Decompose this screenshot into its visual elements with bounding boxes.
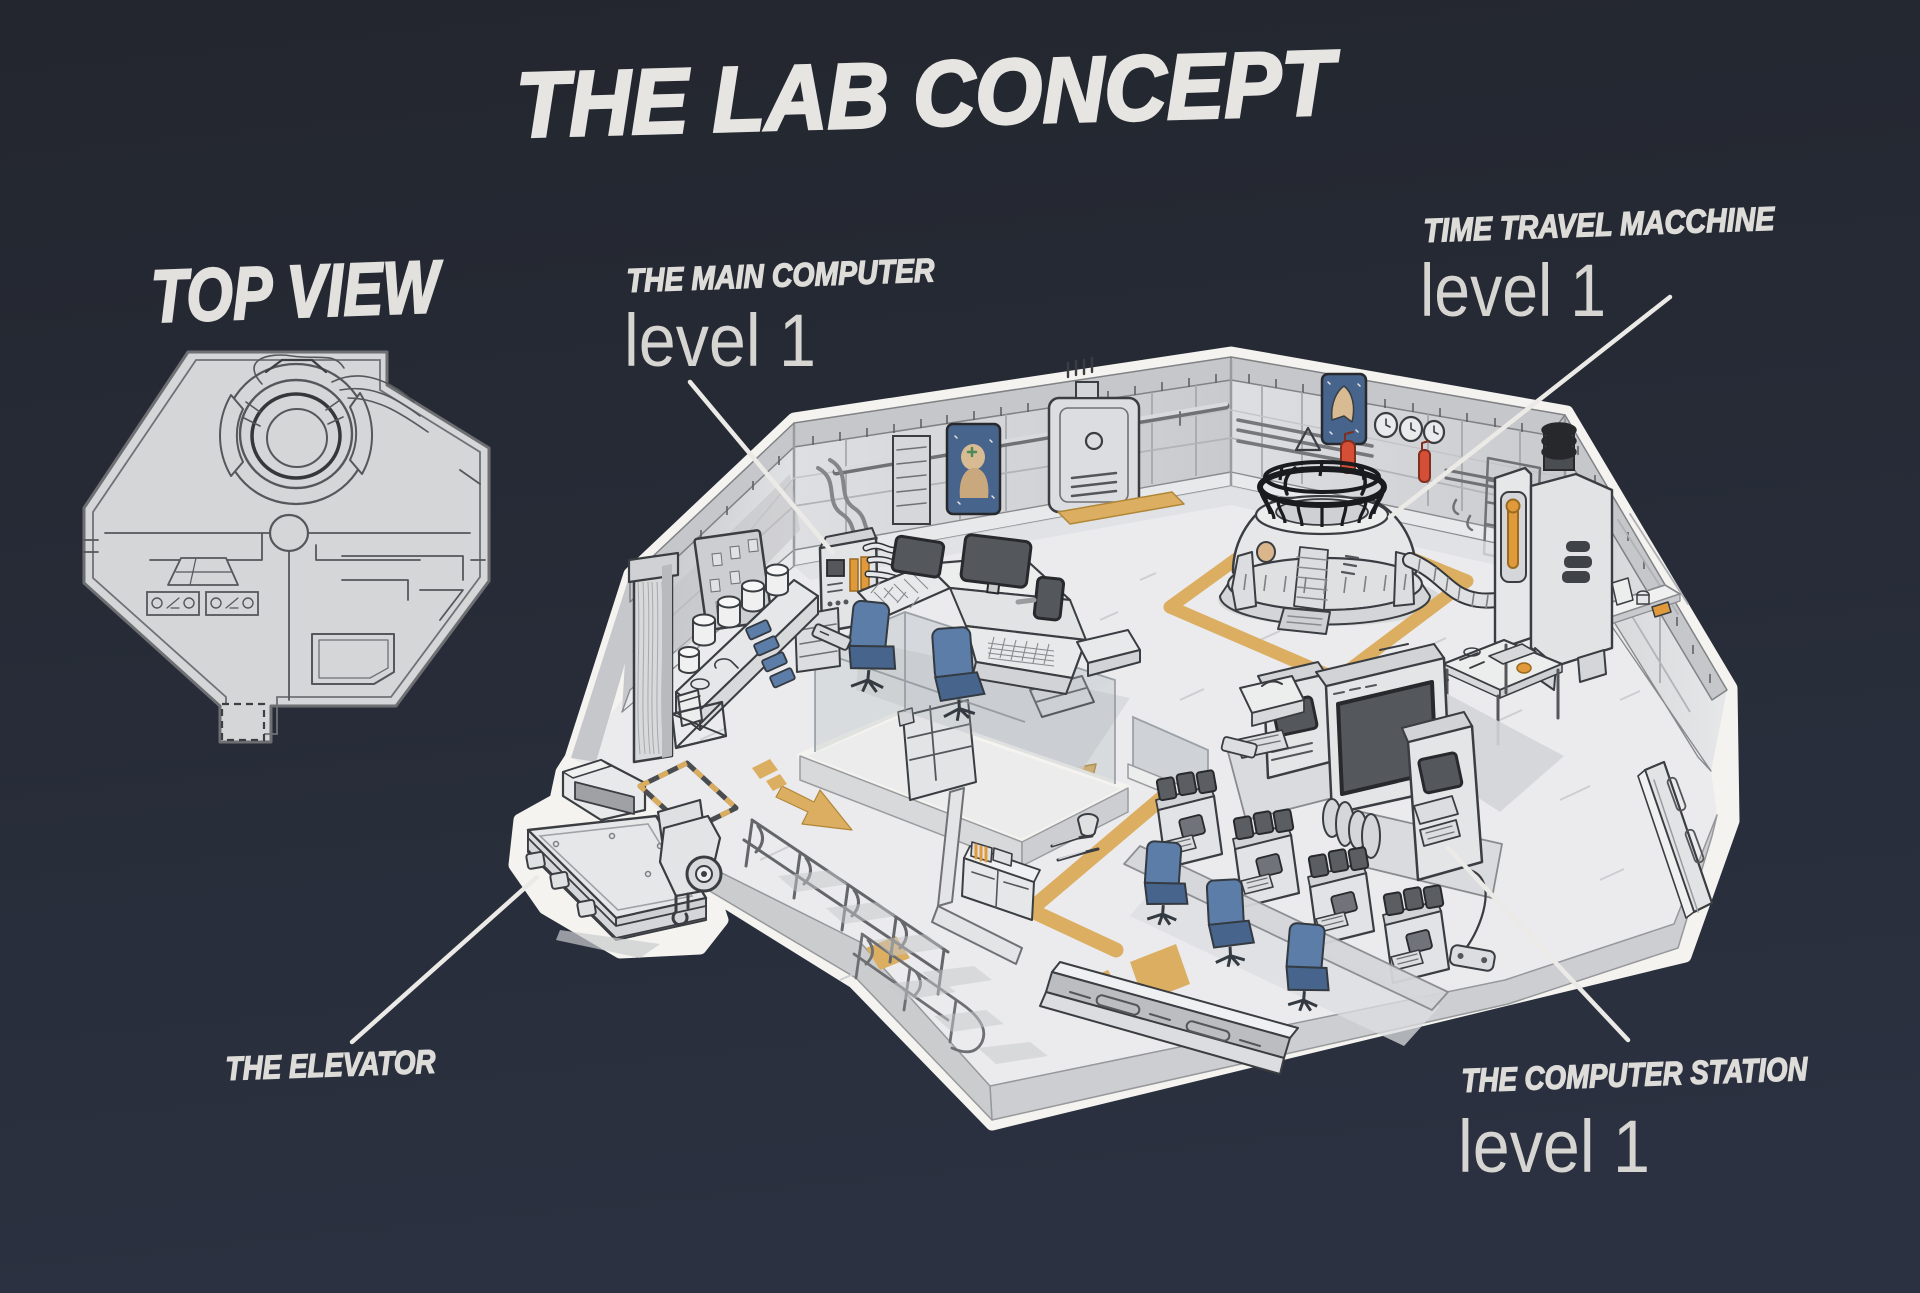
svg-text:THE ELEVATOR: THE ELEVATOR	[225, 1043, 436, 1087]
svg-text:TOP VIEW: TOP VIEW	[150, 245, 446, 338]
svg-text:level 1: level 1	[1420, 249, 1606, 332]
svg-text:level 1: level 1	[624, 299, 816, 382]
svg-text:level 1: level 1	[1458, 1105, 1650, 1188]
